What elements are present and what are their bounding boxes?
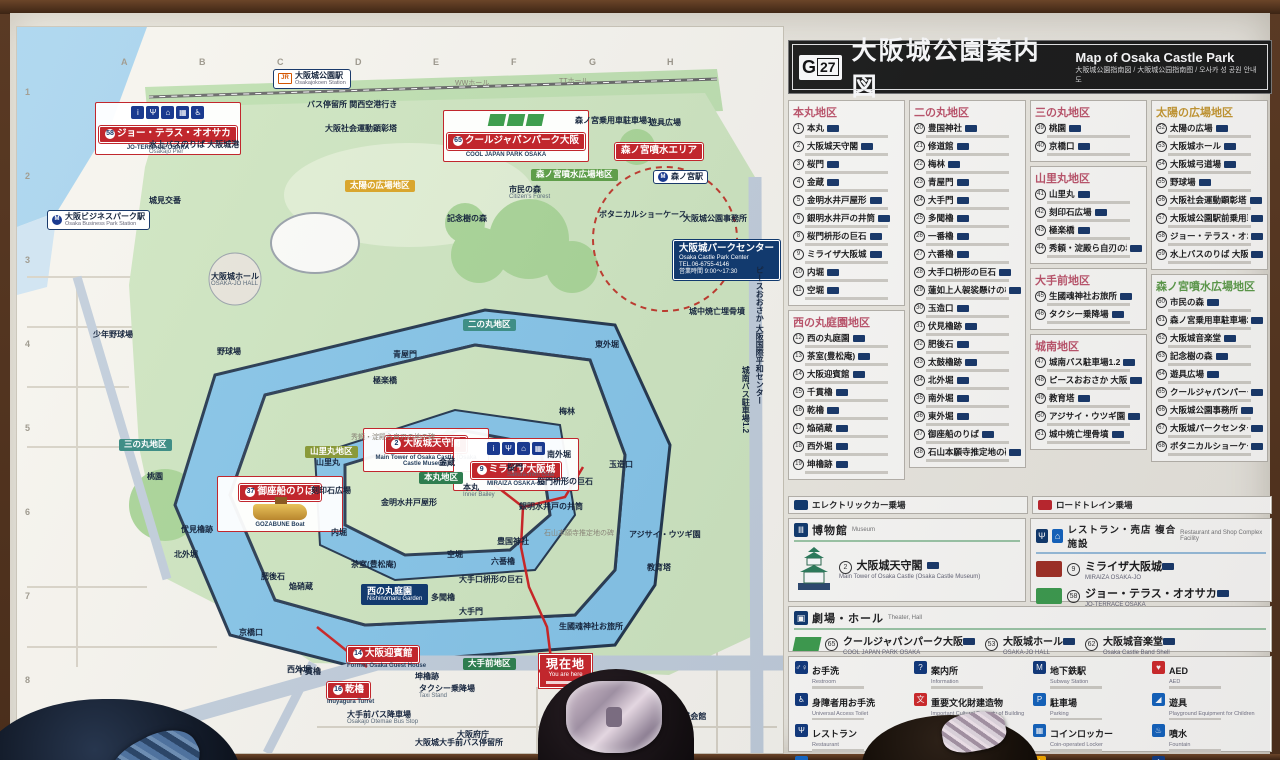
district-area-badge: 森ノ宮噴水広場地区 <box>531 169 618 181</box>
pictogram-subtext-bar <box>1050 749 1102 752</box>
item-number: 38 <box>914 447 925 458</box>
legend-item-row: 68ボタニカルショーケース <box>1156 440 1263 452</box>
item-subtext-bar <box>805 261 888 264</box>
grid-ref-badge <box>878 215 890 222</box>
item-label: ミライザ大阪城 <box>807 248 867 260</box>
item-label: ボタニカルショーケース <box>1170 440 1248 452</box>
legend-item: 12西の丸庭園 <box>793 332 900 348</box>
item-number: 37 <box>914 429 925 440</box>
pictogram-text: お手洗Restroom <box>812 661 864 689</box>
district-title: 城南地区 <box>1035 338 1142 354</box>
item-label: 大阪城弓道場 <box>1170 158 1221 170</box>
legend-item-row: 36東外堀 <box>914 410 1021 422</box>
item-subtext-bar <box>805 417 888 420</box>
grid-ref-badge <box>1078 227 1090 234</box>
item-subtext-bar <box>926 153 1009 156</box>
item-label: 桃園 <box>1049 122 1066 134</box>
guide-office-icon: ? <box>914 661 927 674</box>
legend-item-row: 63記念樹の森 <box>1156 350 1263 362</box>
item-number: 58 <box>1067 590 1080 603</box>
map-label-red: 森ノ宮噴水エリア <box>615 143 703 160</box>
item-label: 蓮如上人袈裟懸けの松 <box>928 284 1006 296</box>
pictogram-label: 噴水 <box>1169 729 1187 739</box>
item-number: 53 <box>985 638 998 651</box>
item-number: 12 <box>793 333 804 344</box>
road-train-icon <box>1038 500 1052 510</box>
station-label: M大阪ビジネスパーク駅Osaka Business Park Station <box>47 210 150 230</box>
item-label: 極楽橋 <box>1049 224 1075 236</box>
item-label: 大阪城ホール <box>1003 637 1063 648</box>
legend-item: 37御座船のりば <box>914 428 1021 444</box>
grid-number-5: 5 <box>25 423 30 433</box>
item-number: 57 <box>1156 213 1167 224</box>
route-number-badge: G 27 <box>799 55 842 80</box>
grid-ref-badge <box>957 215 969 222</box>
legend-item-row: 56大阪社会運動顕彰塔 <box>1156 194 1263 206</box>
item-label: 銀明水井戸の井筒 <box>807 212 875 224</box>
item-label: 伏見櫓跡 <box>928 320 962 332</box>
grid-ref-badge <box>836 443 848 450</box>
pictogram-sub: Coin-operated Locker <box>1050 742 1113 748</box>
grid-ref-badge <box>957 341 969 348</box>
legend-item-row: 28大手口枡形の巨石 <box>914 266 1021 278</box>
pictogram-label: 案内所 <box>931 666 958 676</box>
map-label: 教育塔 <box>647 563 671 572</box>
item-number: 20 <box>914 123 925 134</box>
pictogram-item: P駐車場Parking <box>1033 693 1146 721</box>
map-label: 大手口枡形の巨石 <box>459 575 523 584</box>
legend-item: 17焔硝蔵 <box>793 422 900 438</box>
map-label: 金蔵 <box>439 458 455 467</box>
map-label: 少年野球場 <box>93 330 133 339</box>
item-label: 東外堀 <box>928 410 954 422</box>
item-number: 26 <box>914 231 925 242</box>
map-label: 市民の森Citizen's Forest <box>509 185 550 201</box>
pictogram-label: お手洗 <box>812 666 839 676</box>
pictogram-label: 重要文化財建造物 <box>931 698 1003 708</box>
item-subtext-bar <box>1168 399 1251 402</box>
legend-item-row: 6銀明水井戸の井筒 <box>793 212 900 224</box>
map-label: 南外堀 <box>547 450 571 459</box>
item-number: 25 <box>914 213 925 224</box>
legend-item-row: 13茶室(豊松庵) <box>793 350 900 362</box>
grid-ref-badge <box>965 125 977 132</box>
miraiza-illustration <box>1036 561 1062 577</box>
grid-ref-badge <box>1095 209 1107 216</box>
item-label: 大手口枡形の巨石 <box>928 266 996 278</box>
item-label: 大阪城音楽堂 <box>1103 637 1163 648</box>
pictogram-label: レストラン <box>812 729 857 739</box>
item-number: 10 <box>793 267 804 278</box>
legend-item: 16乾櫓 <box>793 404 900 420</box>
fountain-icon: ♨ <box>1152 724 1165 737</box>
item-subtext-bar <box>926 369 1009 372</box>
toilet-icon: ♿ <box>191 106 204 119</box>
item-number: 6 <box>793 213 804 224</box>
pictogram-item: ◢遊具Playground Equipment for Children <box>1152 693 1265 721</box>
item-number: 45 <box>1035 291 1046 302</box>
legend-item: 44秀頼・淀殿ら自刃の地の碑 <box>1035 242 1142 258</box>
district-title: 森ノ宮噴水広場地区 <box>1156 278 1263 294</box>
item-label: クールジャパンパーク大阪 <box>1170 386 1248 398</box>
station-text: 大阪城公園駅Osakajokoen Station <box>295 71 346 87</box>
item-subtext-bar <box>1168 345 1251 348</box>
map-label: 焔硝蔵 <box>289 582 313 591</box>
grid-ref-badge <box>1078 395 1090 402</box>
museum-title: 博物館 <box>812 522 848 538</box>
item-number: 64 <box>1156 369 1167 380</box>
legend-item-row: 62大阪城音楽堂 <box>1156 332 1263 344</box>
legend-item-row: 61森ノ宮乗用車駐車場3 <box>1156 314 1263 326</box>
restaurant-item: 58ジョー・テラス・オオサカJO-TERRACE OSAKA <box>1036 584 1266 608</box>
accessible-toilet-icon: ♿ <box>795 693 808 706</box>
badge-number: 27 <box>817 58 839 76</box>
map-label-english: Inner Bailey <box>463 492 495 499</box>
grid-ref-badge <box>1251 233 1263 240</box>
map-label: 坤櫓跡 <box>415 672 439 681</box>
legend-item: 10内堀 <box>793 266 900 282</box>
item-number: 29 <box>914 285 925 296</box>
district-group: 太陽の広場地区52太陽の広場53大阪城ホール54大阪城弓道場55野球場56大阪社… <box>1151 100 1268 270</box>
shop-icon: ⌂ <box>161 106 174 119</box>
grid-letter-B: B <box>199 57 206 67</box>
legend-item: 47城南バス駐車場1.2 <box>1035 356 1142 372</box>
item-number: 42 <box>1035 207 1046 218</box>
legend-item-row: 54大阪城弓道場 <box>1156 158 1263 170</box>
item-label: 一番櫓 <box>928 230 954 242</box>
legend-item-row: 58ジョー・テラス・オオサカ <box>1156 230 1263 242</box>
item-subtext-bar <box>805 153 888 156</box>
item-subtext-bar <box>805 453 888 456</box>
legend-item: 63記念樹の森 <box>1156 350 1263 366</box>
legend-item: 43極楽橋 <box>1035 224 1142 240</box>
theater-item: 65クールジャパンパーク大阪COOL JAPAN PARK OSAKA <box>794 632 975 656</box>
legend-item: 26一番櫓 <box>914 230 1021 246</box>
park-center-title: 大阪城パークセンター <box>679 244 774 255</box>
restaurant-title-en: Restaurant and Shop Complex Facility <box>1180 530 1266 542</box>
item-number: 66 <box>1156 405 1167 416</box>
item-subtext-bar <box>805 207 888 210</box>
restaurant-header: Ψ ⌂ レストラン・売店 複合施設 Restaurant and Shop Co… <box>1036 522 1266 554</box>
grid-ref-badge <box>1123 359 1135 366</box>
map-label: 水上バスのりば 大阪城港Osakajo Pier <box>149 140 239 156</box>
legend-item-row: 2大阪城天守閣 <box>793 140 900 152</box>
item-label: 大阪社会運動顕彰塔 <box>1170 194 1247 206</box>
district-area-badge: 二の丸地区 <box>463 319 516 331</box>
item-subtext-bar <box>926 351 1009 354</box>
legend-item: 49教育塔 <box>1035 392 1142 408</box>
legend-item-row: 23青屋門 <box>914 176 1021 188</box>
item-label: 大阪城音楽堂 <box>1170 332 1221 344</box>
museum-item-label: 大阪城天守閣 <box>856 560 922 572</box>
pictogram-text: 案内所Information <box>931 661 983 689</box>
legend-item-row: 18西外堀 <box>793 440 900 452</box>
legend-item-row: 32肥後石 <box>914 338 1021 350</box>
item-label: 金明水井戸屋形 <box>807 194 867 206</box>
grid-ref-badge <box>1163 638 1175 645</box>
legend-item: 3桜門 <box>793 158 900 174</box>
legend-item-row: 30玉造口 <box>914 302 1021 314</box>
pictogram-item: ⚠急な階段Steep Stairs <box>1033 756 1146 760</box>
theater-header: ▣ 劇場・ホール Theater, Hall <box>794 610 1266 630</box>
locker-icon: ▦ <box>176 106 189 119</box>
legend-item-row: 5金明水井戸屋形 <box>793 194 900 206</box>
item-label: ピースおおさか 大阪国際平和センター <box>1049 374 1127 386</box>
item-subtext-bar <box>926 297 1009 300</box>
map-label-vertical: ピースおおさか 大阪国際平和センター <box>755 266 764 404</box>
photo-of-park-sign: ABCDEFGH12345678 iΨ⌂▦♿58ジョー・テラス・オオサカJO-T… <box>0 0 1280 760</box>
legend-item: 24大手門 <box>914 194 1021 210</box>
legend-item-row: 3桜門 <box>793 158 900 170</box>
item-english: MIRAIZA OSAKA-JO <box>1085 575 1174 581</box>
map-label: 本丸Inner Bailey <box>463 483 495 499</box>
station-text: 森ノ宮駅 <box>671 172 703 181</box>
item-label: 多聞櫓 <box>928 212 954 224</box>
map-label: 玉造口 <box>609 460 633 469</box>
legend-item: 9ミライザ大阪城 <box>793 248 900 264</box>
map-label: 肥後石 <box>261 572 285 581</box>
legend-item: 31伏見櫓跡 <box>914 320 1021 336</box>
pictogram-text: 急な階段Steep Stairs <box>1050 756 1102 760</box>
legend-item: 40京橋口 <box>1035 140 1142 156</box>
grid-ref-badge <box>1112 431 1124 438</box>
item-label: 水上バスのりば 大阪城港 <box>1170 248 1248 260</box>
road-train-stop-note: ロードトレイン乗場 <box>1032 496 1272 514</box>
item-number: 39 <box>1035 123 1046 134</box>
map-title-bar: G 27 大阪城公園案内図 Map of Osaka Castle Park 大… <box>788 40 1272 94</box>
item-subtext-bar <box>1168 363 1251 366</box>
map-label-red-wrap: 16乾櫓Inuyagura Turret <box>327 678 374 705</box>
item-number: 33 <box>914 357 925 368</box>
playground-icon: ◢ <box>1152 693 1165 706</box>
grid-number-8: 8 <box>25 675 30 685</box>
grid-ref-badge <box>957 179 969 186</box>
restaurant-box: Ψ ⌂ レストラン・売店 複合施設 Restaurant and Shop Co… <box>1030 518 1272 602</box>
item-number: 16 <box>333 685 343 695</box>
item-subtext-bar <box>1168 189 1251 192</box>
grid-ref-badge <box>827 179 839 186</box>
legend-item: 13茶室(豊松庵) <box>793 350 900 366</box>
map-label: 内堀 <box>331 528 347 537</box>
grid-number-7: 7 <box>25 591 30 601</box>
grid-ref-badge <box>1112 311 1124 318</box>
restaurant-icon: Ψ <box>146 106 159 119</box>
legend-item-row: 66大阪城公園事務所 <box>1156 404 1263 416</box>
legend-item-row: 60市民の森 <box>1156 296 1263 308</box>
item-subtext-bar <box>926 315 1009 318</box>
item-number: 31 <box>914 321 925 332</box>
item-subtext-bar <box>805 243 888 246</box>
item-label: 大手門 <box>928 194 954 206</box>
district-group: 三の丸地区39桃園40京橋口 <box>1030 100 1147 162</box>
item-number: 8 <box>793 231 804 242</box>
pictogram-text: 売店Shop <box>812 756 864 760</box>
item-label: 青屋門 <box>928 176 954 188</box>
grid-ref-badge <box>827 161 839 168</box>
map-label-navy: 西の丸庭園Nishinomaru Garden <box>361 584 428 605</box>
legend-item: 61森ノ宮乗用車駐車場3 <box>1156 314 1263 330</box>
item-label: 遊具広場 <box>1170 368 1204 380</box>
grid-ref-badge <box>836 425 848 432</box>
grid-ref-badge <box>1224 161 1236 168</box>
map-label-english: Citizen's Forest <box>509 194 550 201</box>
item-label: 記念樹の森 <box>1170 350 1213 362</box>
grid-ref-badge <box>1224 143 1236 150</box>
legend-item: 36東外堀 <box>914 410 1021 426</box>
item-label: 肥後石 <box>928 338 954 350</box>
item-label: 大阪迎賓館 <box>807 368 850 380</box>
map-label: ボタニカルショーケース <box>599 210 687 219</box>
theater-item-text: 大阪城ホールOSAKA-JO HALL <box>1003 632 1075 656</box>
item-label: タクシー乗降場 <box>1049 308 1109 320</box>
legend-item-row: 19坤櫓跡 <box>793 458 900 470</box>
pictogram-text: コインロッカーCoin-operated Locker <box>1050 724 1113 752</box>
grid-ref-badge <box>999 269 1011 276</box>
district-area-badge: 本丸地区 <box>419 472 463 484</box>
item-label: 桜門 <box>807 158 824 170</box>
legend-item: 66大阪城公園事務所 <box>1156 404 1263 420</box>
grid-ref-badge <box>1162 563 1174 570</box>
map-label-red: 14大阪迎賓館 <box>347 646 419 663</box>
item-subtext-bar <box>805 279 888 282</box>
grid-ref-badge <box>982 431 994 438</box>
item-label: 城中焼亡埋骨墳 <box>1049 428 1109 440</box>
hair-bow <box>566 681 662 753</box>
item-subtext-bar <box>1168 327 1251 330</box>
item-label: 内堀 <box>807 266 824 278</box>
pictogram-text: 遊具Playground Equipment for Children <box>1169 693 1255 721</box>
pictogram-sub: Restaurant <box>812 742 864 748</box>
item-number: 59 <box>1156 249 1167 260</box>
map-label: 伏見櫓跡 <box>181 525 213 534</box>
subway-icon: M <box>1033 661 1046 674</box>
pictogram-subtext-bar <box>812 718 864 721</box>
legend-item: 2大阪城天守閣 <box>793 140 900 156</box>
item-number: 5 <box>793 195 804 206</box>
item-label: 秀頼・淀殿ら自刃の地の碑 <box>1049 242 1127 254</box>
item-number: 44 <box>1035 243 1046 254</box>
locker-icon: ▦ <box>532 442 545 455</box>
legend-item-row: 37御座船のりば <box>914 428 1021 440</box>
item-subtext-bar <box>805 471 888 474</box>
legend-item-row: 17焔硝蔵 <box>793 422 900 434</box>
map-label: 大阪城公園事務所 <box>683 214 747 223</box>
grid-number-1: 1 <box>25 87 30 97</box>
item-subtext-bar <box>1047 423 1130 426</box>
pictogram-subtext-bar <box>812 686 864 689</box>
item-label: 豊国神社 <box>928 122 962 134</box>
grid-ref-badge <box>827 125 839 132</box>
map-callout: 37御座船のりばGOZABUNE Boat <box>217 476 343 532</box>
item-number: 43 <box>1035 225 1046 236</box>
district-title: 本丸地区 <box>793 104 900 120</box>
item-number: 53 <box>1156 141 1167 152</box>
item-subtext-bar <box>1168 207 1251 210</box>
grid-ref-badge <box>1251 389 1263 396</box>
pictogram-subtext-bar <box>1050 686 1102 689</box>
item-number: 47 <box>1035 357 1046 368</box>
item-number: 49 <box>1035 393 1046 404</box>
legend-item: 67大阪城パークセンター <box>1156 422 1263 438</box>
item-label: 南外堀 <box>928 392 954 404</box>
cultural-property-icon: 文 <box>914 693 927 706</box>
grid-ref-badge <box>957 377 969 384</box>
map-label-english: Inuyagura Turret <box>327 699 374 706</box>
item-subtext-bar <box>926 441 1009 444</box>
legend-footnotes: エレクトリックカー乗場 ロードトレイン乗場 <box>788 496 1272 514</box>
restaurant-title: レストラン・売店 複合施設 <box>1067 522 1176 550</box>
item-label: 大阪城天守閣 <box>807 140 858 152</box>
map-label: 金明水井戸屋形 <box>381 498 437 507</box>
restaurant-item-text: ジョー・テラス・オオサカJO-TERRACE OSAKA <box>1085 584 1229 608</box>
item-subtext-bar <box>1047 321 1130 324</box>
grid-ref-badge <box>1009 449 1021 456</box>
map-label: 東外堀 <box>595 340 619 349</box>
page-subtitle-multilingual: 大阪城公園指南図 / 大阪城公园指南图 / 오사카 성 공원 안내도 <box>1075 65 1261 85</box>
grid-ref-badge <box>957 197 969 204</box>
grid-ref-badge <box>1069 125 1081 132</box>
legend-item: 35南外堀 <box>914 392 1021 408</box>
map-label-red: 65クールジャパンパーク大阪 <box>447 133 585 150</box>
item-label: 北外堀 <box>928 374 954 386</box>
map-label: TTホール <box>559 78 589 86</box>
pictogram-sub: Restroom <box>812 679 864 685</box>
item-label: アジサイ・ウツギ園 <box>1049 410 1125 422</box>
map-label: 西外堀 <box>287 665 311 674</box>
item-subtext-bar <box>805 189 888 192</box>
legend-item-row: 26一番櫓 <box>914 230 1021 242</box>
district-title: 二の丸地区 <box>914 104 1021 120</box>
pictogram-column-2: M地下鉄駅Subway StationP駐車場Parking▦コインロッカーCo… <box>1033 661 1146 747</box>
legend-item: 58ジョー・テラス・オオサカ <box>1156 230 1263 246</box>
legend-column-1: 二の丸地区20豊国神社21修道館22梅林23青屋門24大手門25多聞櫓26一番櫓… <box>909 100 1026 492</box>
restaurant-icon: Ψ <box>1036 529 1048 543</box>
legend-item-row: 20豊国神社 <box>914 122 1021 134</box>
district-title: 西の丸庭園地区 <box>793 314 900 330</box>
green-block <box>526 114 545 126</box>
museum-item-english: Main Tower of Osaka Castle (Osaka Castle… <box>839 574 980 580</box>
map-label: 秀頼・淀殿ら自刃の地の碑 <box>351 434 435 442</box>
item-number: 2 <box>793 141 804 152</box>
item-number: 11 <box>793 285 804 296</box>
district-group: 城南地区47城南バス駐車場1.248ピースおおさか 大阪国際平和センター49教育… <box>1030 334 1147 450</box>
legend-item: 18西外堀 <box>793 440 900 456</box>
legend-item: 21修道館 <box>914 140 1021 156</box>
gozabune-boat-illustration <box>253 504 307 520</box>
legend-item-row: 47城南バス駐車場1.2 <box>1035 356 1142 368</box>
parking-icon: P <box>1033 693 1046 706</box>
legend-item: 33太鼓櫓跡 <box>914 356 1021 372</box>
item-number: 54 <box>1156 159 1167 170</box>
pictogram-label: 地下鉄駅 <box>1050 666 1086 676</box>
grid-ref-badge <box>858 353 870 360</box>
legend-item: 28大手口枡形の巨石 <box>914 266 1021 282</box>
pictogram-subtext-bar <box>1169 686 1221 689</box>
legend-item: 46タクシー乗降場 <box>1035 308 1142 324</box>
facility-icons-row: iΨ⌂▦♿ <box>99 106 237 119</box>
map-label: 大手門 <box>459 607 483 616</box>
item-number: 1 <box>793 123 804 134</box>
legend-panel: G 27 大阪城公園案内図 Map of Osaka Castle Park 大… <box>788 40 1272 752</box>
item-number: 67 <box>1156 423 1167 434</box>
theater-title: 劇場・ホール <box>812 610 884 626</box>
pictogram-text: 交番Police Box <box>1169 756 1221 760</box>
pictogram-label: コインロッカー <box>1050 729 1113 739</box>
item-subtext-bar <box>926 279 1009 282</box>
item-number: 3 <box>793 159 804 170</box>
grid-ref-badge <box>861 143 873 150</box>
map-label-english: Osakajo Pier <box>149 149 239 156</box>
